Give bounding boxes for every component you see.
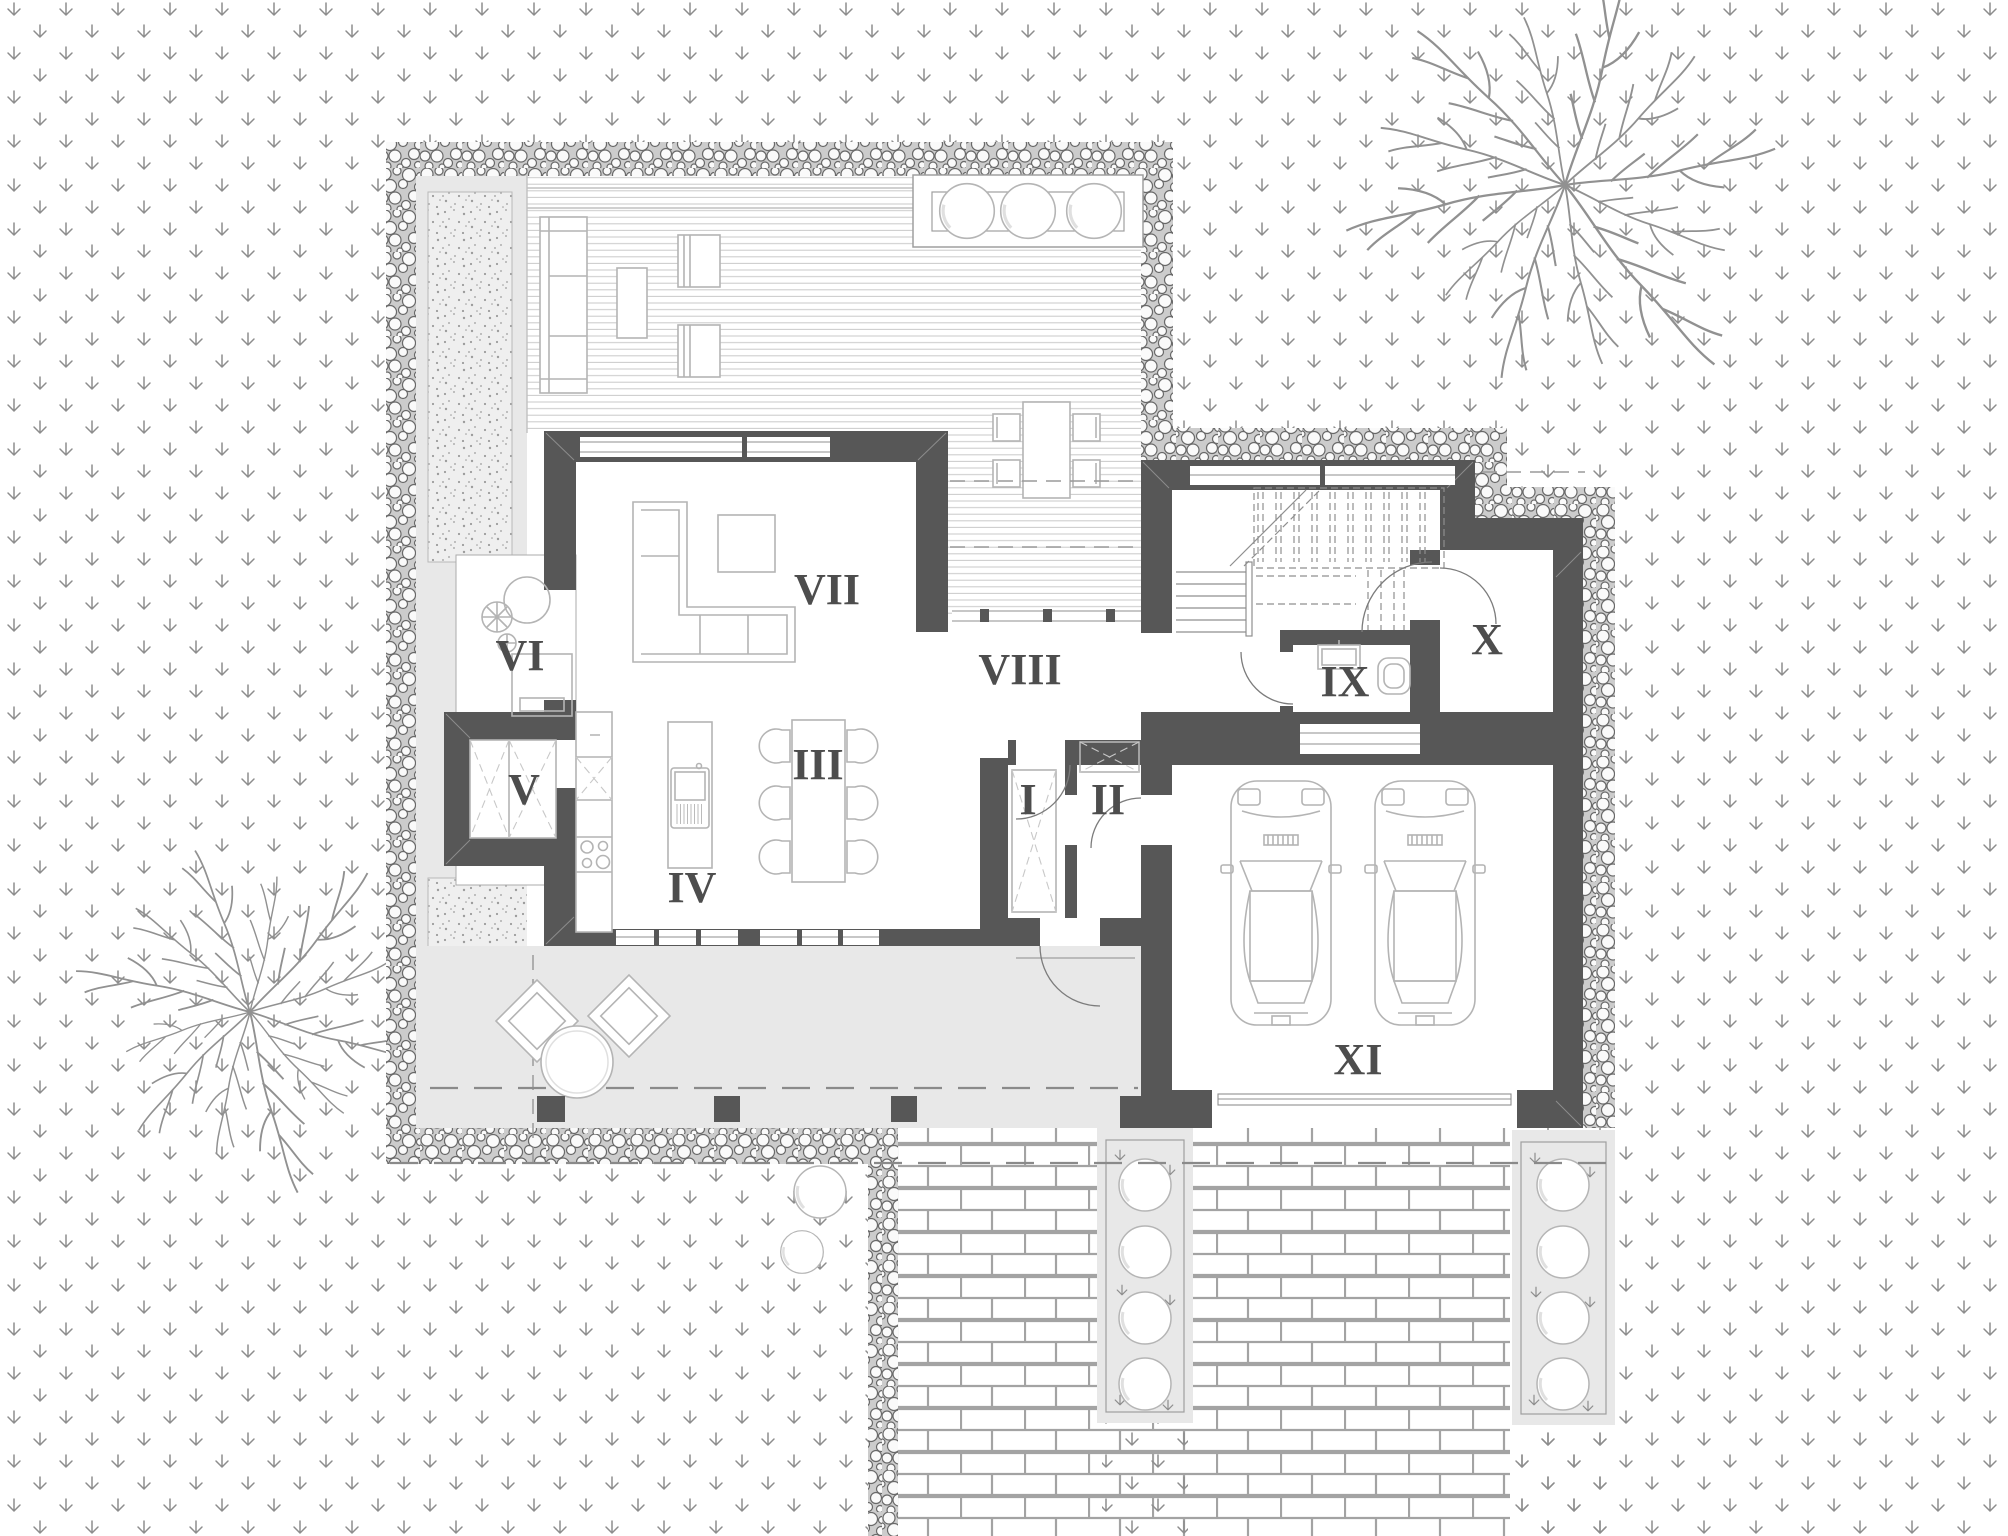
dining-chair <box>759 729 790 763</box>
room-label-IX: IX <box>1321 657 1370 706</box>
room-label-VI: VI <box>496 631 545 680</box>
bush-icon <box>1001 184 1056 239</box>
brick-driveway <box>898 1128 1615 1536</box>
dining-chair <box>847 840 878 874</box>
bush-icon <box>781 1231 824 1274</box>
planting-bed <box>428 192 512 562</box>
room-label-I: I <box>1019 775 1036 824</box>
room-label-II: II <box>1091 775 1125 824</box>
bush-icon <box>1119 1358 1171 1410</box>
outdoor-armchair <box>678 325 720 377</box>
post <box>891 1096 917 1122</box>
driveway-planter <box>1512 1130 1615 1536</box>
dining-chair <box>847 729 878 763</box>
room-label-III: III <box>792 740 843 789</box>
deck-chair <box>993 460 1020 487</box>
bush-icon <box>1537 1358 1589 1410</box>
outdoor-sofa <box>540 217 587 393</box>
sliding-glass-door <box>952 609 1141 622</box>
room-label-IV: IV <box>668 863 717 912</box>
bush-icon <box>1119 1159 1171 1211</box>
porch-pillar <box>1120 1096 1193 1128</box>
bush-icon <box>1537 1226 1589 1278</box>
outdoor-side-table <box>617 268 647 338</box>
floor-plan-drawing: IIIIIIIVVVIVIIVIIIIXXXI <box>0 0 2008 1536</box>
room-label-VIII: VIII <box>978 645 1061 694</box>
bush-icon <box>1537 1159 1589 1211</box>
planting-bed <box>428 878 530 955</box>
room-label-XI: XI <box>1334 1035 1383 1084</box>
deck-chair <box>1073 460 1100 487</box>
driveway-planter <box>1097 1128 1193 1536</box>
deck-chair <box>993 414 1020 441</box>
outdoor-armchair <box>678 235 720 287</box>
dining-chair <box>759 786 790 820</box>
terrace-table <box>541 1026 613 1098</box>
deck-chair <box>1073 414 1100 441</box>
dining-chair <box>759 840 790 874</box>
window <box>1300 724 1420 754</box>
floor-plan-page: IIIIIIIVVVIVIIVIIIIXXXI <box>0 0 2008 1536</box>
kitchen-cabinets <box>576 712 612 932</box>
post <box>537 1096 565 1122</box>
bush-icon <box>940 184 995 239</box>
kitchen-island <box>668 722 712 868</box>
bush-icon <box>1119 1292 1171 1344</box>
window <box>760 930 879 945</box>
window <box>1190 466 1455 485</box>
post <box>714 1096 740 1122</box>
bush-icon <box>794 1166 846 1218</box>
room-label-V: V <box>508 765 540 814</box>
room-label-X: X <box>1471 615 1503 664</box>
bush-icon <box>1067 184 1122 239</box>
bush-icon <box>1537 1292 1589 1344</box>
dining-chair <box>847 786 878 820</box>
garage-door <box>1218 1094 1511 1105</box>
deck-dining-table <box>1023 402 1070 498</box>
room-label-VII: VII <box>794 565 860 614</box>
window <box>616 930 738 945</box>
window <box>580 437 830 457</box>
bush-icon <box>1119 1226 1171 1278</box>
